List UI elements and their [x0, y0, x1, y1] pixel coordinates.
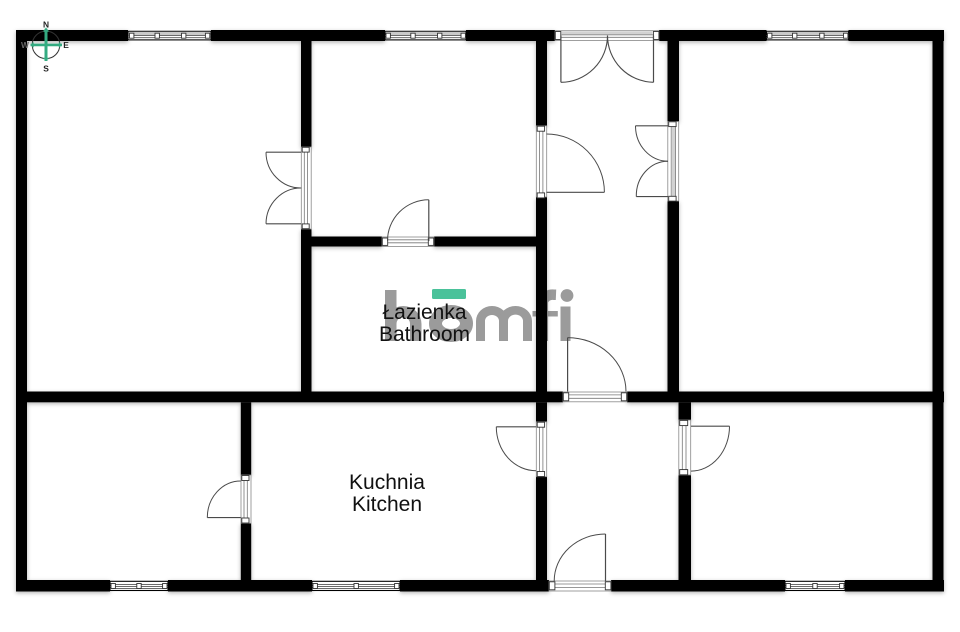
svg-text:E: E	[63, 40, 69, 50]
svg-text:N: N	[43, 20, 49, 30]
svg-text:W: W	[21, 40, 29, 50]
svg-text:S: S	[43, 64, 49, 74]
